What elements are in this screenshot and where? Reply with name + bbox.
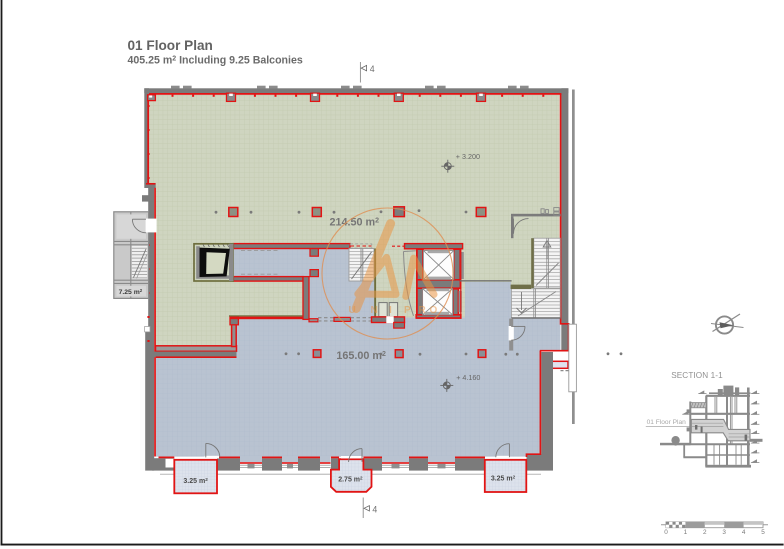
svg-text:4: 4	[742, 529, 746, 536]
svg-text:I: I	[389, 305, 392, 316]
svg-text:O: O	[430, 305, 438, 316]
svg-text:165.00 m2: 165.00 m2	[336, 350, 386, 362]
svg-text:SECTION 1-1: SECTION 1-1	[671, 371, 723, 380]
svg-text:2.75 m2: 2.75 m2	[338, 476, 363, 484]
svg-text:U: U	[349, 305, 356, 316]
svg-text:7.25 m2: 7.25 m2	[119, 288, 143, 296]
svg-text:+ 3.200: + 3.200	[456, 152, 480, 161]
svg-text:3.25 m2: 3.25 m2	[491, 475, 516, 483]
svg-text:N: N	[371, 305, 378, 316]
svg-text:3.25 m2: 3.25 m2	[183, 477, 208, 485]
svg-text:5: 5	[761, 529, 765, 536]
svg-text:01 Floor Plan: 01 Floor Plan	[647, 419, 687, 426]
svg-text:4: 4	[370, 64, 375, 74]
svg-text:405.25 m2 Including 9.25 Balco: 405.25 m2 Including 9.25 Balconies	[128, 55, 303, 67]
svg-text:214.50 m2: 214.50 m2	[330, 216, 380, 228]
svg-text:+ 4.160: + 4.160	[456, 373, 480, 382]
svg-text:0: 0	[664, 529, 668, 536]
svg-text:R: R	[419, 305, 427, 316]
svg-text:2: 2	[703, 529, 707, 536]
svg-text:P: P	[404, 305, 411, 316]
svg-text:3: 3	[722, 529, 726, 536]
svg-text:4: 4	[372, 504, 377, 514]
svg-text:01 Floor Plan: 01 Floor Plan	[128, 38, 213, 53]
svg-text:1: 1	[684, 529, 688, 536]
